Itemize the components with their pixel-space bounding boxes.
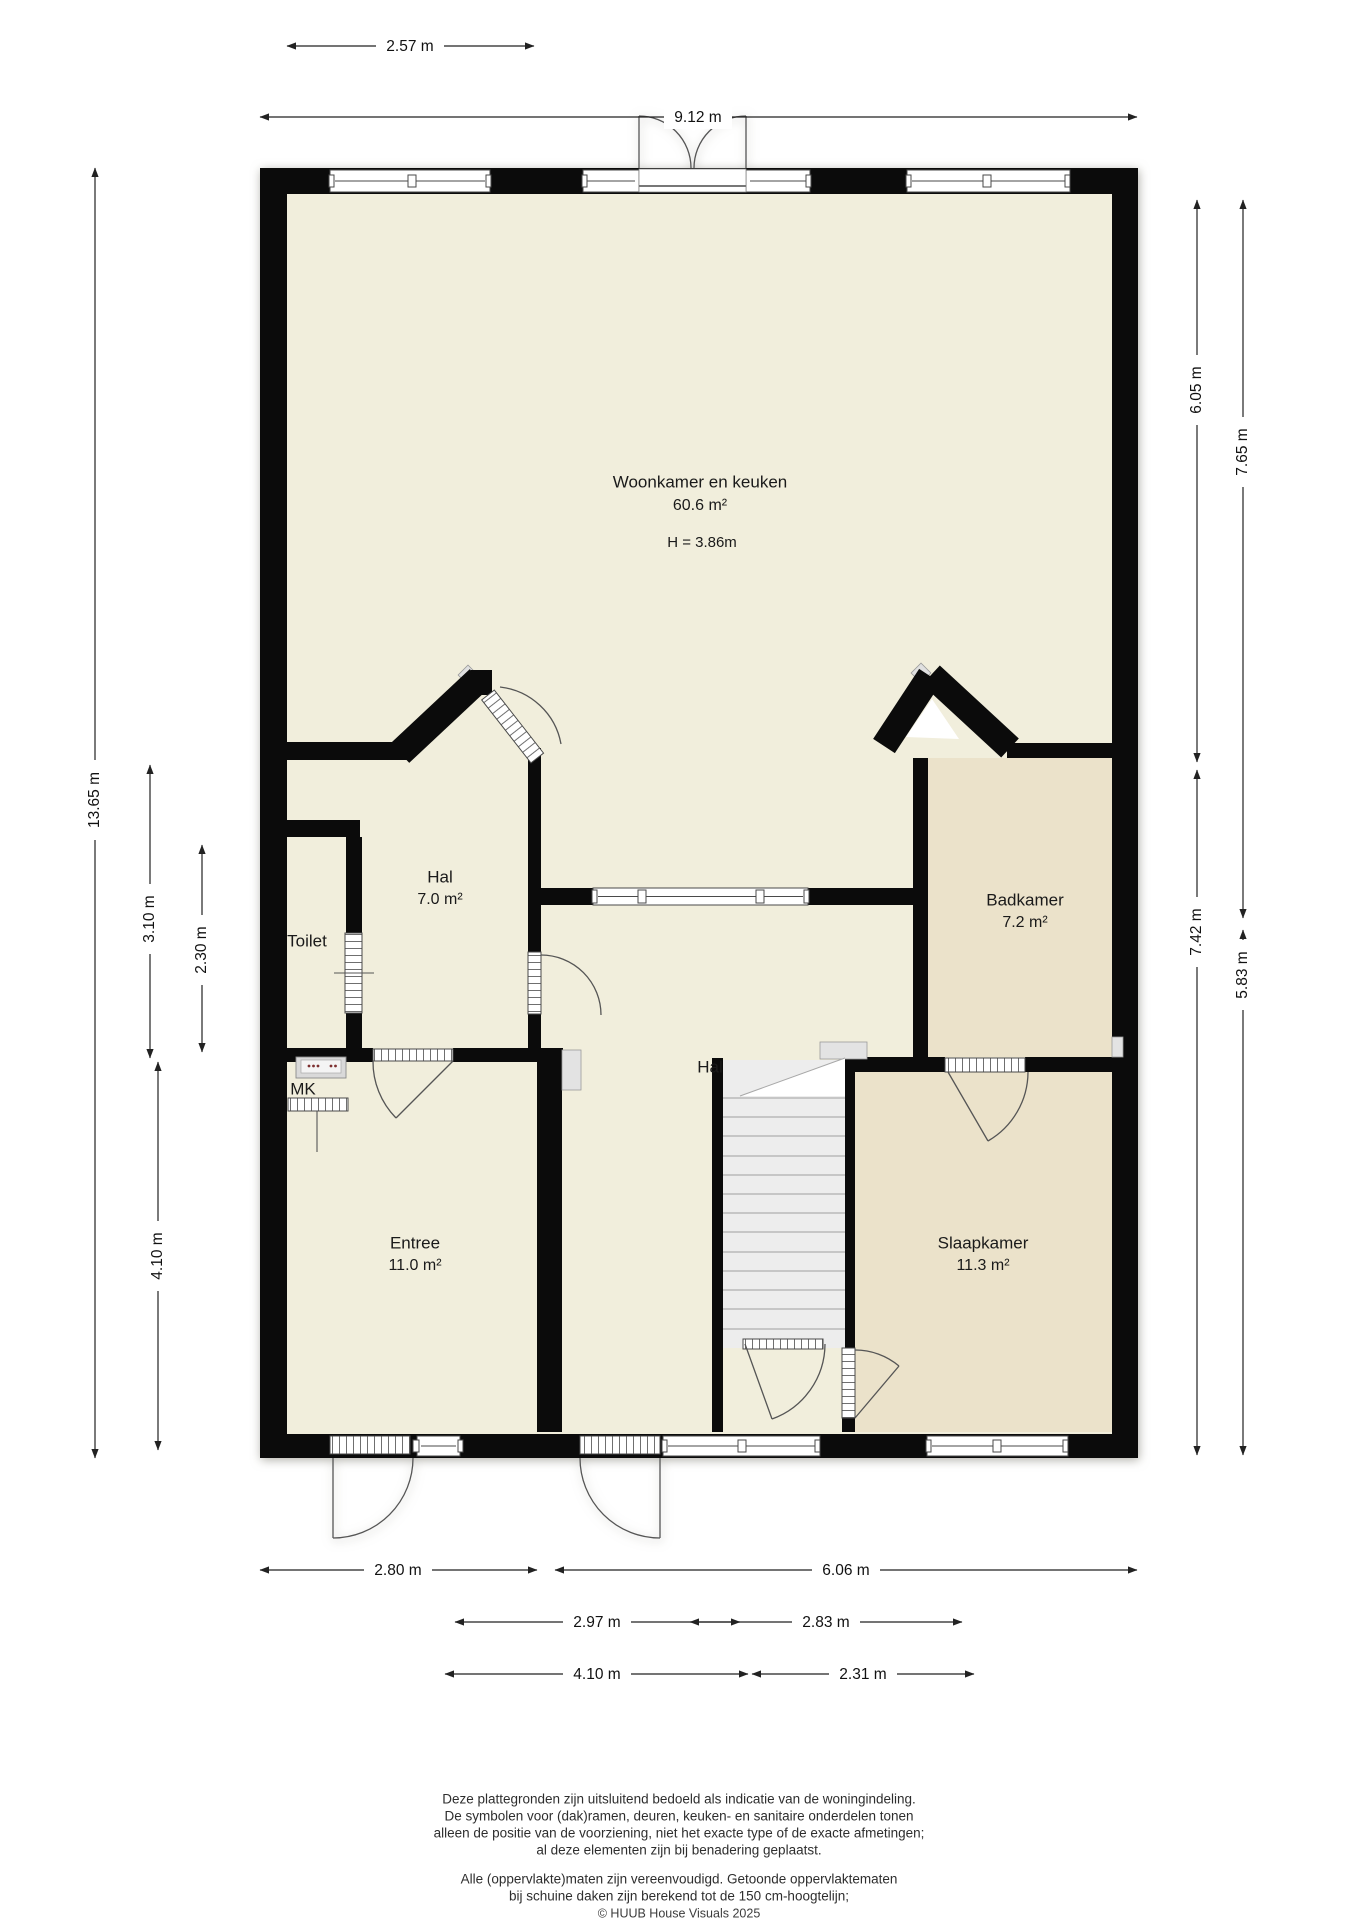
room-label-hal-boven: Hal	[427, 867, 453, 886]
room-label-hal-midden: Hal	[697, 1057, 723, 1076]
window-top-mid-left	[582, 170, 639, 192]
footer-copyright: © HUUB House Visuals 2025	[598, 1906, 761, 1920]
dim-label-283: 2.83 m	[802, 1614, 849, 1631]
room-area-entree: 11.0 m²	[388, 1257, 442, 1274]
room-area-woonkamer: 60.6 m²	[673, 497, 728, 514]
footer-disclaimer-line-4: al deze elementen zijn bij benadering ge…	[536, 1843, 821, 1858]
window-top-mid-right	[746, 170, 811, 192]
dimension-left-310: 3.10 m	[138, 765, 162, 1058]
meter-cabinet	[296, 1057, 346, 1078]
dim-label-742: 7.42 m	[1188, 908, 1205, 955]
floor-plan-canvas: Woonkamer en keuken 60.6 m² H = 3.86m Ha…	[0, 0, 1358, 1920]
footer-disclaimer2-line-2: bij schuine daken zijn berekend tot de 1…	[509, 1889, 849, 1904]
dim-label-605: 6.05 m	[1188, 366, 1205, 413]
front-door-entree	[330, 1436, 413, 1538]
dim-label-257: 2.57 m	[386, 38, 433, 55]
dimension-right-583: 5.83 m	[1231, 930, 1255, 1455]
window-partition-hal	[592, 888, 809, 905]
footer-disclaimer2-line-1: Alle (oppervlakte)maten zijn vereenvoudi…	[461, 1872, 898, 1887]
footer-disclaimer-line-1: Deze plattegronden zijn uitsluitend bedo…	[442, 1792, 916, 1807]
dimension-bottom-410: 4.10 m	[445, 1662, 748, 1686]
dim-label-410b: 4.10 m	[573, 1666, 620, 1683]
stair-landing	[820, 1042, 867, 1059]
dimension-top-257: 2.57 m	[287, 34, 534, 58]
room-label-woonkamer: Woonkamer en keuken	[613, 472, 788, 491]
dimension-top-912: 9.12 m	[260, 105, 1137, 129]
room-label-slaapkamer: Slaapkamer	[938, 1233, 1029, 1252]
dim-label-1365: 13.65 m	[86, 772, 103, 828]
dim-label-230: 2.30 m	[193, 926, 210, 973]
dim-label-310: 3.10 m	[141, 895, 158, 942]
dim-label-765: 7.65 m	[1234, 428, 1251, 475]
building: Woonkamer en keuken 60.6 m² H = 3.86m Ha…	[260, 116, 1138, 1538]
room-label-badkamer: Badkamer	[986, 890, 1064, 909]
window-bottom-slaapkamer	[926, 1436, 1068, 1456]
dimension-bottom-280: 2.80 m	[260, 1558, 537, 1582]
dimension-bottom-231: 2.31 m	[752, 1662, 974, 1686]
dimension-left-230: 2.30 m	[190, 845, 214, 1052]
floor-plan-page: Woonkamer en keuken 60.6 m² H = 3.86m Ha…	[0, 0, 1358, 1920]
room-area-slaapkamer: 11.3 m²	[956, 1257, 1010, 1274]
room-height-woonkamer: H = 3.86m	[667, 534, 737, 551]
dim-label-231: 2.31 m	[839, 1666, 886, 1683]
dimension-bottom-283: 2.83 m	[690, 1610, 962, 1634]
radiator-hal	[562, 1050, 581, 1090]
niche-badkamer	[1112, 1037, 1123, 1057]
room-label-mk: MK	[290, 1079, 316, 1098]
dim-label-410l: 4.10 m	[149, 1232, 166, 1279]
footer: Deze plattegronden zijn uitsluitend bedo…	[434, 1792, 925, 1920]
dim-label-606: 6.06 m	[822, 1562, 869, 1579]
dimension-right-765: 7.65 m	[1231, 200, 1255, 918]
front-door-hal	[580, 1436, 660, 1538]
room-label-entree: Entree	[390, 1233, 440, 1252]
dim-label-297: 2.97 m	[573, 1614, 620, 1631]
window-bottom-hal	[662, 1436, 820, 1456]
footer-disclaimer-line-3: alleen de positie van de voorziening, ni…	[434, 1826, 925, 1841]
room-area-hal-boven: 7.0 m²	[417, 891, 463, 908]
dimension-left-1365: 13.65 m	[83, 168, 107, 1458]
dim-label-280: 2.80 m	[374, 1562, 421, 1579]
dimension-bottom-606: 6.06 m	[555, 1558, 1137, 1582]
room-area-badkamer: 7.2 m²	[1002, 914, 1048, 931]
window-top-left	[329, 170, 491, 192]
dim-label-912: 9.12 m	[674, 109, 721, 126]
dimension-left-410: 4.10 m	[146, 1062, 170, 1450]
window-bottom-entree	[413, 1436, 463, 1456]
footer-disclaimer-line-2: De symbolen voor (dak)ramen, deuren, keu…	[444, 1809, 913, 1824]
room-label-toilet: Toilet	[287, 931, 327, 950]
dim-label-583: 5.83 m	[1234, 951, 1251, 998]
dimension-right-605: 6.05 m	[1185, 200, 1209, 762]
window-top-right	[906, 170, 1070, 192]
dimension-right-742: 7.42 m	[1185, 770, 1209, 1455]
